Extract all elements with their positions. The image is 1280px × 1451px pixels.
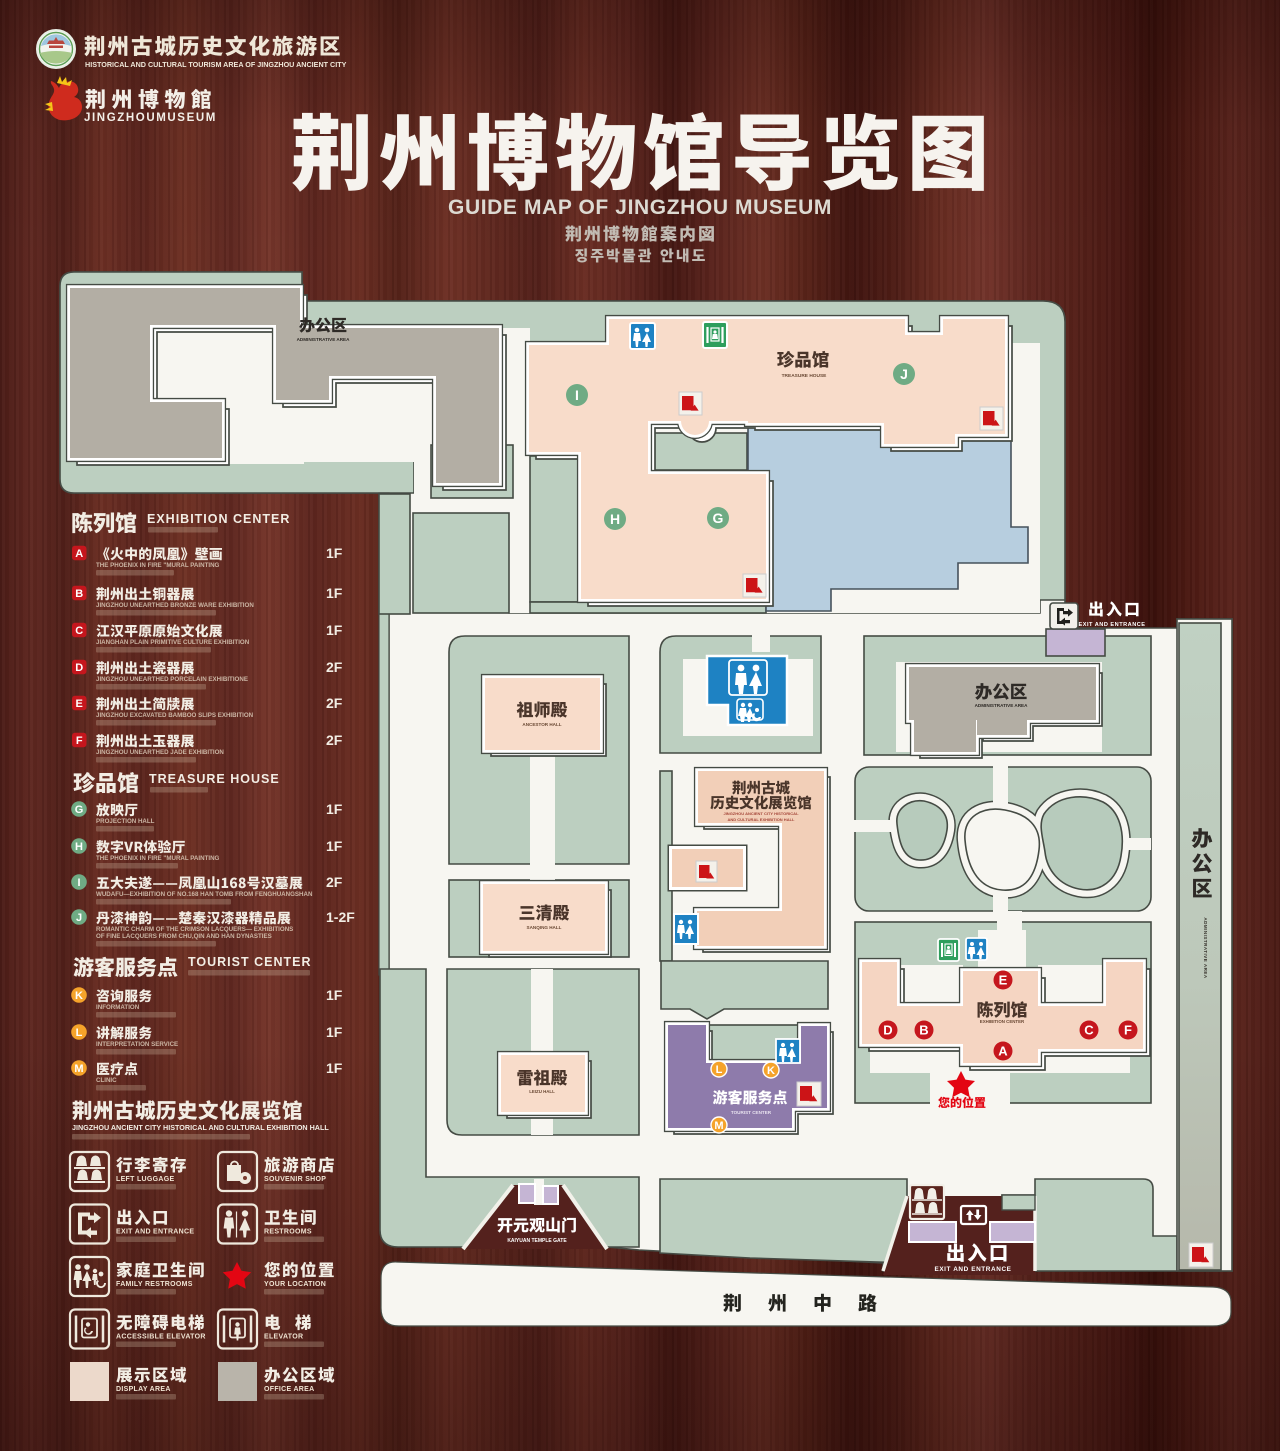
svg-text:FAMILY RESTROOMS: FAMILY RESTROOMS [116, 1281, 193, 1288]
svg-text:G: G [75, 804, 84, 816]
svg-text:D: D [75, 662, 83, 674]
svg-text:E: E [76, 698, 83, 710]
svg-text:EXIT AND ENTRANCE: EXIT AND ENTRANCE [116, 1229, 194, 1236]
svg-text:CLINIC: CLINIC [96, 1077, 117, 1084]
svg-text:SANQING HALL: SANQING HALL [527, 925, 562, 930]
svg-text:LEIZU HALL: LEIZU HALL [529, 1089, 555, 1094]
svg-text:1F: 1F [326, 801, 343, 817]
svg-text:TOURIST CENTER: TOURIST CENTER [731, 1110, 772, 1115]
svg-text:ELEVATOR: ELEVATOR [264, 1334, 303, 1341]
svg-text:TOURIST CENTER: TOURIST CENTER [188, 955, 312, 969]
svg-text:H: H [610, 511, 620, 527]
svg-text:ADMINISTRATIVE AREA: ADMINISTRATIVE AREA [975, 703, 1029, 708]
svg-text:2F: 2F [326, 659, 343, 675]
svg-text:SOUVENIR SHOP: SOUVENIR SHOP [264, 1176, 326, 1183]
svg-text:JINGZHOU EXCAVATED BAMBOO SLIP: JINGZHOU EXCAVATED BAMBOO SLIPS EXHIBITI… [96, 712, 254, 719]
svg-text:I: I [77, 877, 80, 889]
svg-text:F: F [76, 735, 83, 747]
svg-text:J: J [900, 366, 908, 382]
svg-text:L: L [76, 1027, 83, 1039]
svg-text:YOUR LOCATION: YOUR LOCATION [264, 1281, 326, 1288]
svg-text:F: F [1124, 1023, 1132, 1038]
svg-text:ROMANTIC CHARM OF THE CRIMSON: ROMANTIC CHARM OF THE CRIMSON LACQUERS— … [96, 926, 293, 933]
svg-text:THE PHOENIX IN FIRE "MURAL PAI: THE PHOENIX IN FIRE "MURAL PAINTING [96, 562, 220, 569]
svg-text:J: J [76, 912, 82, 924]
svg-text:DISPLAY AREA: DISPLAY AREA [116, 1386, 171, 1393]
svg-text:OFFICE AREA: OFFICE AREA [264, 1386, 315, 1393]
svg-text:WUDAFU—EXHIBITION OF NO.168 HA: WUDAFU—EXHIBITION OF NO.168 HAN TOMB FRO… [96, 891, 313, 898]
svg-text:INFORMATION: INFORMATION [96, 1004, 140, 1011]
svg-text:2F: 2F [326, 695, 343, 711]
svg-text:JINGZHOU UNEARTHED BRONZE WARE: JINGZHOU UNEARTHED BRONZE WARE EXHIBITIO… [96, 602, 254, 609]
svg-text:D: D [883, 1023, 892, 1038]
svg-text:1F: 1F [326, 838, 343, 854]
svg-text:JIANGHAN PLAIN PRIMITIVE CULTU: JIANGHAN PLAIN PRIMITIVE CULTURE EXHIBIT… [96, 639, 250, 646]
svg-text:L: L [716, 1064, 723, 1076]
svg-text:THE PHOENIX IN FIRE "MURAL PAI: THE PHOENIX IN FIRE "MURAL PAINTING [96, 855, 220, 862]
svg-text:H: H [75, 841, 83, 853]
svg-text:ANCESTOR HALL: ANCESTOR HALL [522, 722, 561, 727]
svg-text:ACCESSIBLE ELEVATOR: ACCESSIBLE ELEVATOR [116, 1334, 206, 1341]
svg-text:HISTORICAL AND CULTURAL TOURIS: HISTORICAL AND CULTURAL TOURISM AREA OF … [85, 60, 347, 69]
svg-text:TREASURE HOUSE: TREASURE HOUSE [782, 373, 828, 379]
svg-text:M: M [74, 1063, 83, 1075]
svg-text:JINGZHOU UNEARTHED PORCELAIN E: JINGZHOU UNEARTHED PORCELAIN EXHIBITIONE [96, 676, 248, 683]
svg-text:RESTROOMS: RESTROOMS [264, 1229, 312, 1236]
svg-text:1-2F: 1-2F [326, 909, 355, 925]
svg-text:JINGZHOU ANCIENT CITY HISTORIC: JINGZHOU ANCIENT CITY HISTORICAL AND CUL… [72, 1123, 329, 1132]
svg-text:E: E [999, 973, 1008, 988]
svg-text:1F: 1F [326, 545, 343, 561]
svg-text:JINGZHOU UNEARTHED JADE EXHIBI: JINGZHOU UNEARTHED JADE EXHIBITION [96, 749, 224, 756]
svg-text:G: G [713, 510, 724, 526]
svg-text:JINGZHOUMUSEUM: JINGZHOUMUSEUM [84, 112, 217, 124]
svg-text:K: K [75, 990, 83, 1002]
svg-text:1F: 1F [326, 1060, 343, 1076]
svg-text:EXIT AND ENTRANCE: EXIT AND ENTRANCE [1078, 622, 1145, 628]
svg-text:M: M [714, 1120, 723, 1132]
svg-text:AND CULTURAL EXHIBITION HALL: AND CULTURAL EXHIBITION HALL [728, 817, 796, 822]
svg-text:ADMINISTRATIVE AREA: ADMINISTRATIVE AREA [1203, 917, 1208, 979]
svg-text:OF FINE LACQUERS FROM CHU,QIN: OF FINE LACQUERS FROM CHU,QIN AND HAN DY… [96, 933, 272, 940]
svg-text:1F: 1F [326, 1024, 343, 1040]
svg-text:B: B [75, 588, 83, 600]
svg-text:GUIDE MAP OF JINGZHOU MUSEUM: GUIDE MAP OF JINGZHOU MUSEUM [448, 196, 832, 219]
svg-text:EXIT AND ENTRANCE: EXIT AND ENTRANCE [934, 1266, 1011, 1273]
svg-text:ADMINISTRATIVE AREA: ADMINISTRATIVE AREA [297, 337, 351, 342]
svg-text:2F: 2F [326, 874, 343, 890]
svg-text:KAIYUAN TEMPLE GATE: KAIYUAN TEMPLE GATE [507, 1238, 567, 1244]
svg-text:I: I [575, 387, 579, 403]
svg-text:C: C [1084, 1023, 1094, 1038]
svg-text:K: K [767, 1065, 775, 1077]
svg-text:PROJECTION HALL: PROJECTION HALL [96, 818, 155, 825]
svg-text:A: A [75, 548, 83, 560]
svg-text:C: C [75, 625, 83, 637]
svg-text:INTERPRETATION SERVICE: INTERPRETATION SERVICE [96, 1041, 178, 1048]
svg-text:1F: 1F [326, 987, 343, 1003]
svg-text:LEFT LUGGAGE: LEFT LUGGAGE [116, 1176, 174, 1183]
svg-text:1F: 1F [326, 622, 343, 638]
svg-text:EXHIBITION CENTER: EXHIBITION CENTER [147, 512, 290, 526]
svg-text:2F: 2F [326, 732, 343, 748]
svg-text:A: A [998, 1044, 1008, 1059]
svg-text:1F: 1F [326, 585, 343, 601]
svg-text:TREASURE HOUSE: TREASURE HOUSE [149, 772, 280, 786]
svg-text:EXHIBITION CENTER: EXHIBITION CENTER [980, 1019, 1025, 1024]
svg-text:B: B [919, 1023, 928, 1038]
svg-text:JINGZHOU ANCIENT CITY HISTORIC: JINGZHOU ANCIENT CITY HISTORICAL [723, 811, 799, 816]
